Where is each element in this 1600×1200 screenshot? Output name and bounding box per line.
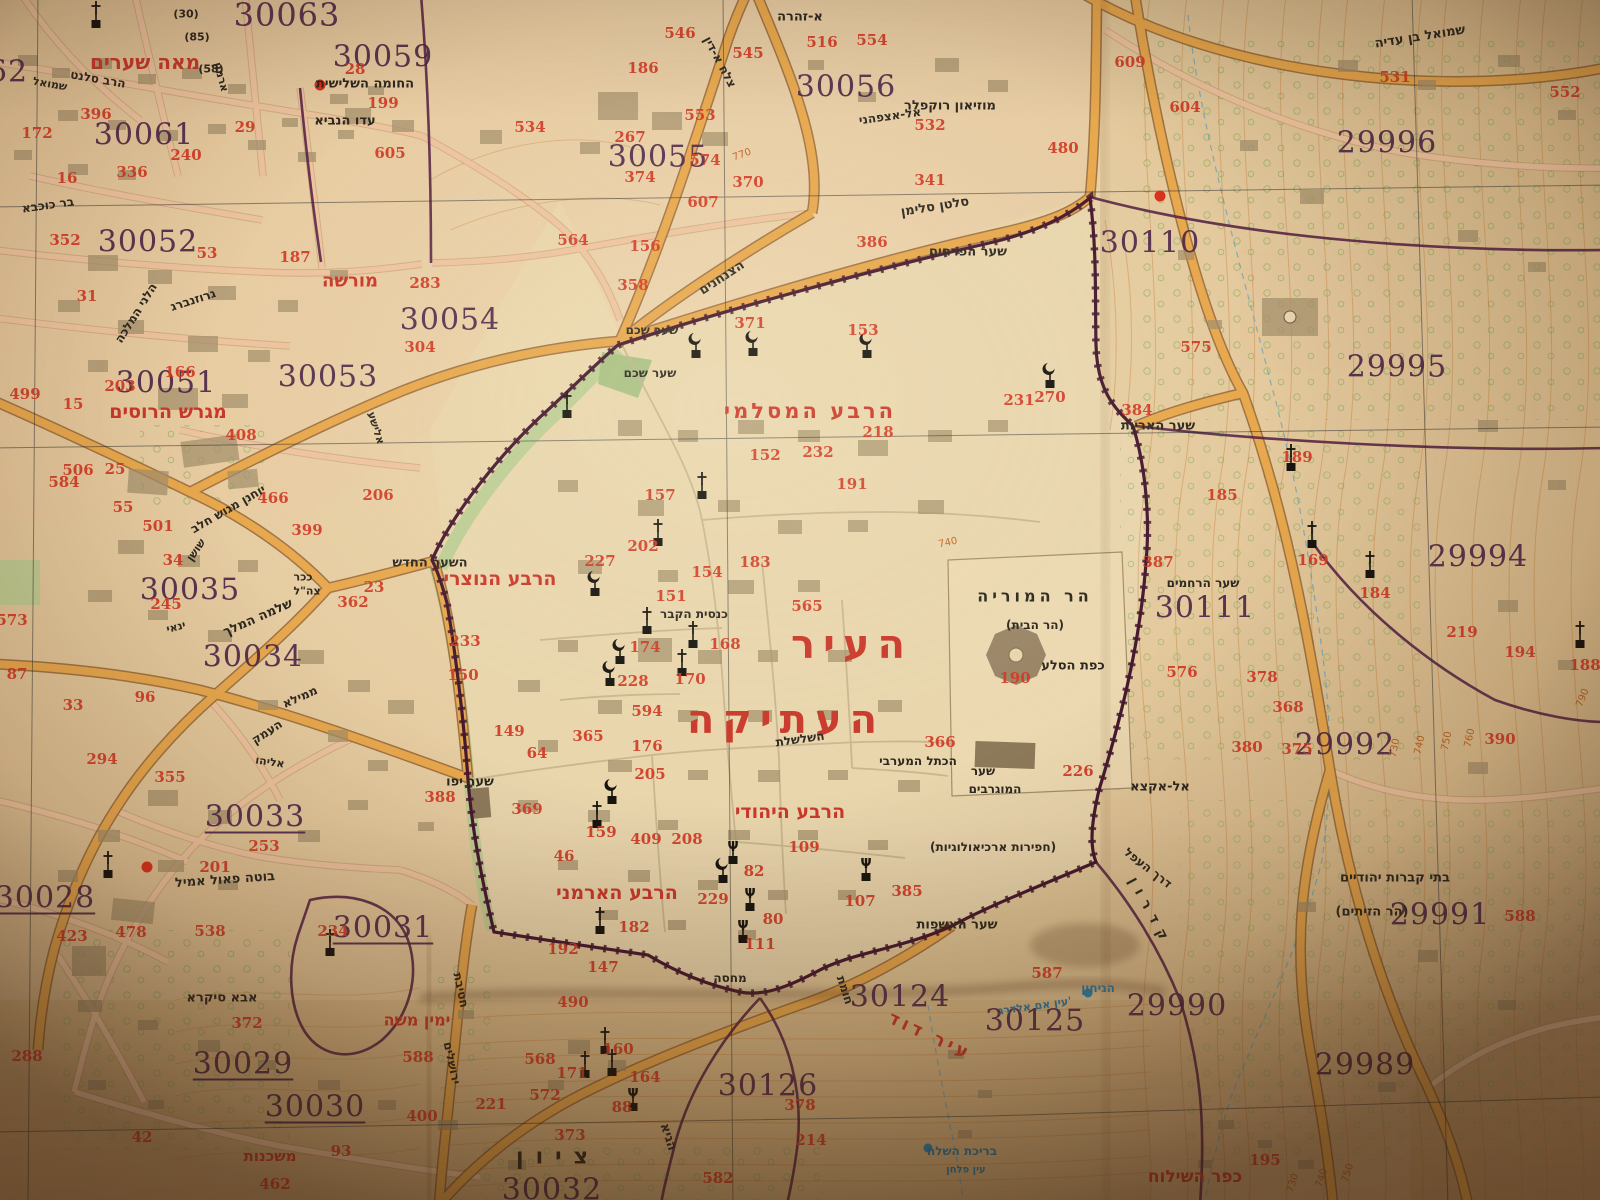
block-number-label: 30111	[1155, 591, 1255, 626]
parcel-number-label: 205	[634, 765, 665, 783]
parcel-number-label: 227	[584, 552, 615, 570]
parcel-number-label: 226	[1062, 762, 1093, 780]
place-name-red-label: הרבע המסלמי	[724, 399, 896, 423]
parcel-number-label: 480	[1047, 139, 1078, 157]
parcel-number-label: 164	[629, 1068, 660, 1086]
parcel-number-label: 499	[9, 385, 40, 403]
parcel-number-label: 283	[409, 274, 440, 292]
parcel-number-label: 229	[697, 890, 728, 908]
place-name-label: אליהו	[255, 754, 286, 771]
parcel-number-label: 16	[57, 169, 78, 187]
contour-value-label: 730	[1285, 1172, 1301, 1194]
parcel-number-label: 245	[150, 595, 181, 613]
place-name-label: שער	[971, 764, 995, 778]
parcel-number-label: 584	[48, 473, 79, 491]
place-name-label: שער האשפות	[916, 918, 997, 933]
block-number-label: 30053	[278, 360, 378, 395]
parcel-number-label: 206	[362, 486, 393, 504]
place-name-label: (85)	[184, 31, 209, 44]
contour-value-label: 740	[1413, 735, 1428, 756]
parcel-number-label: 554	[856, 31, 887, 49]
place-name-label: יוחנן מגוש חלב	[188, 482, 268, 536]
parcel-number-label: 564	[557, 231, 588, 249]
parcel-number-label: 111	[744, 935, 775, 953]
place-name-label: שער שכם	[624, 366, 677, 380]
parcel-number-label: 93	[331, 1142, 352, 1160]
parcel-number-label: 153	[847, 321, 878, 339]
parcel-number-label: 288	[11, 1047, 42, 1065]
place-name-label: סלטן סלימן	[900, 194, 970, 220]
parcel-number-label: 202	[627, 537, 658, 555]
parcel-number-label: 53	[197, 244, 218, 262]
parcel-number-label: 304	[404, 338, 435, 356]
parcel-number-label: 46	[554, 847, 575, 865]
parcel-number-label: 294	[86, 750, 117, 768]
parcel-number-label: 546	[664, 24, 695, 42]
block-number-label: 30032	[502, 1173, 602, 1200]
parcel-number-label: 55	[113, 498, 134, 516]
parcel-number-label: 378	[1246, 668, 1277, 686]
parcel-number-label: 372	[231, 1014, 262, 1032]
place-name-label: אבא סיקרא	[187, 991, 258, 1006]
parcel-number-label: 234	[317, 922, 348, 940]
parcel-number-label: 185	[1206, 486, 1237, 504]
block-number-label: 30030	[265, 1090, 365, 1125]
place-name-label: עדו הנביא	[314, 114, 375, 129]
place-name-label: שושן	[184, 536, 209, 563]
block-number-label: 29995	[1347, 350, 1447, 385]
parcel-number-label: 192	[547, 940, 578, 958]
block-number-label: 30056	[796, 70, 896, 105]
parcel-number-label: 399	[291, 521, 322, 539]
parcel-number-label: 166	[164, 363, 195, 381]
parcel-number-label: 157	[644, 486, 675, 504]
place-name-label: א-זהרה	[777, 10, 823, 25]
parcel-number-label: 218	[862, 423, 893, 441]
place-name-label: אל-אצפהני	[858, 105, 922, 128]
place-name-red-label: ימין משה	[384, 1011, 451, 1030]
parcel-number-label: 594	[631, 702, 662, 720]
place-name-label: בוטה פאול אמיל	[175, 869, 276, 891]
contour-value-label: 730	[1388, 738, 1403, 759]
parcel-number-label: 42	[132, 1128, 153, 1146]
parcel-number-label: 531	[1379, 68, 1410, 86]
place-name-label: שער האריות	[1121, 419, 1195, 434]
parcel-number-label: 588	[1504, 907, 1535, 925]
contour-value-label: 760	[1463, 728, 1478, 749]
place-name-label: החומה השלישית	[316, 77, 414, 92]
parcel-number-label: 231	[1003, 391, 1034, 409]
place-name-label: הר המוריה	[977, 587, 1093, 606]
place-name-red-label: כפר השילוח	[1148, 1167, 1242, 1187]
block-number-label: 30110	[1100, 226, 1200, 261]
block-number-label: 30054	[400, 303, 500, 338]
place-name-label: ממילא	[280, 683, 319, 711]
parcel-number-label: 152	[749, 446, 780, 464]
place-name-label: שער הרחמים	[1167, 576, 1240, 590]
place-name-red-label: העיר	[791, 622, 913, 668]
parcel-number-label: 28	[345, 60, 366, 78]
place-name-red-label: עיר דוד	[885, 1008, 975, 1065]
parcel-number-label: 82	[744, 862, 765, 880]
place-name-label: אלישע	[365, 410, 388, 446]
parcel-number-label: 605	[374, 144, 405, 162]
place-name-label: אל-אקצא	[1130, 780, 1190, 795]
parcel-number-label: 378	[784, 1096, 815, 1114]
place-name-label: העמק	[249, 717, 285, 747]
parcel-number-label: 336	[116, 163, 147, 181]
water-name-label: עין פלחן	[946, 1165, 985, 1176]
place-name-label: בר כוכבא	[21, 194, 75, 215]
parcel-number-label: 552	[1549, 83, 1580, 101]
parcel-number-label: 384	[1121, 401, 1152, 419]
place-name-label: שער יפו	[446, 775, 494, 790]
parcel-number-label: 396	[80, 105, 111, 123]
parcel-number-label: 609	[1114, 53, 1145, 71]
parcel-number-label: 199	[367, 94, 398, 112]
place-name-label: השער החדש	[392, 556, 467, 571]
place-name-red-label: הרבע הארמני	[556, 882, 678, 904]
parcel-number-label: 151	[655, 587, 686, 605]
parcel-number-label: 408	[225, 426, 256, 444]
contour-value-label: 740	[1314, 1167, 1330, 1189]
parcel-number-label: 171	[556, 1064, 587, 1082]
place-name-label: שמואל	[32, 75, 68, 94]
parcel-number-label: 267	[614, 128, 645, 146]
parcel-number-label: 88	[612, 1098, 633, 1116]
block-number-label: 30052	[98, 225, 198, 260]
parcel-number-label: 29	[235, 118, 256, 136]
parcel-number-label: 64	[527, 744, 548, 762]
parcel-number-label: 409	[630, 830, 661, 848]
place-name-label: מחסה	[713, 971, 746, 985]
parcel-number-label: 160	[602, 1040, 633, 1058]
contour-value-label: 750	[1340, 1162, 1356, 1184]
parcel-number-label: 390	[1484, 730, 1515, 748]
parcel-number-label: 168	[709, 635, 740, 653]
parcel-number-label: 203	[104, 377, 135, 395]
parcel-number-label: 374	[624, 168, 655, 186]
parcel-number-label: 176	[631, 737, 662, 755]
parcel-number-label: 370	[732, 173, 763, 191]
parcel-number-label: 355	[154, 768, 185, 786]
place-name-label: בתי קברות יהודיים	[1340, 871, 1450, 886]
parcel-number-label: 565	[791, 597, 822, 615]
parcel-number-label: 538	[194, 922, 225, 940]
place-name-label: צלח א-דין	[701, 34, 740, 90]
parcel-number-label: 233	[449, 632, 480, 650]
parcel-number-label: 574	[689, 151, 720, 169]
place-name-label: (הר הבית)	[1006, 618, 1064, 632]
place-name-label: ירושלים	[441, 1040, 464, 1085]
parcel-number-label: 208	[671, 830, 702, 848]
block-number-label: 29994	[1428, 540, 1528, 575]
parcel-number-label: 462	[259, 1175, 290, 1193]
place-name-label: כפת הסלע	[1041, 659, 1105, 674]
contour-value-label: 740	[938, 536, 959, 551]
parcel-number-label: 31	[77, 287, 98, 305]
parcel-number-label: 186	[627, 59, 658, 77]
parcel-number-label: 87	[7, 665, 28, 683]
parcel-number-label: 400	[406, 1107, 437, 1125]
parcel-number-label: 387	[1142, 553, 1173, 571]
parcel-number-label: 34	[163, 551, 184, 569]
parcel-number-label: 501	[142, 517, 173, 535]
place-name-label: המוגרבים	[969, 782, 1022, 796]
parcel-number-label: 172	[21, 124, 52, 142]
parcel-number-label: 534	[514, 118, 545, 136]
parcel-number-label: 240	[170, 146, 201, 164]
place-name-label: ינאי	[165, 618, 187, 636]
parcel-number-label: 147	[587, 958, 618, 976]
block-number-label: 30034	[203, 640, 303, 675]
parcel-number-label: 575	[1180, 338, 1211, 356]
parcel-number-label: 15	[63, 395, 84, 413]
parcel-number-label: 573	[0, 611, 28, 629]
parcel-number-label: 385	[891, 882, 922, 900]
parcel-number-label: 80	[763, 910, 784, 928]
parcel-number-label: 568	[524, 1050, 555, 1068]
parcel-number-label: 195	[1249, 1151, 1280, 1169]
parcel-number-label: 221	[475, 1095, 506, 1113]
contour-value-label: 790	[1574, 687, 1591, 709]
parcel-number-label: 572	[529, 1086, 560, 1104]
parcel-number-label: 154	[691, 563, 722, 581]
place-name-label: ככר	[293, 571, 312, 584]
place-name-label: חטיבת	[450, 971, 471, 1009]
place-name-label: כנסית הקבר	[660, 607, 728, 621]
parcel-number-label: 190	[999, 669, 1030, 687]
parcel-number-label: 159	[585, 823, 616, 841]
place-name-label: (58)	[198, 63, 223, 76]
place-name-label: צה"ל	[293, 585, 320, 598]
parcel-number-label: 516	[806, 33, 837, 51]
contour-value-label: 770	[731, 147, 753, 164]
parcel-number-label: 194	[1504, 643, 1535, 661]
parcel-number-label: 368	[1272, 698, 1303, 716]
water-name-label: בריכת השלח	[927, 1144, 997, 1158]
parcel-number-label: 423	[56, 927, 87, 945]
parcel-number-label: 170	[674, 670, 705, 688]
parcel-number-label: 604	[1169, 98, 1200, 116]
parcel-number-label: 96	[135, 688, 156, 706]
contour-value-label: 750	[1440, 731, 1455, 752]
parcel-number-label: 232	[802, 443, 833, 461]
block-number-label: 29989	[1315, 1048, 1415, 1083]
place-name-red-label: מאה שערים	[90, 50, 200, 74]
water-name-label: הגיחון	[1081, 981, 1115, 995]
block-number-label: 30033	[205, 800, 305, 835]
place-name-label: שמואל בן עדיה	[1374, 22, 1467, 51]
parcel-number-label: 184	[1359, 584, 1390, 602]
place-name-red-label: הרבע הנוצרי	[444, 568, 557, 590]
parcel-number-label: 156	[629, 237, 660, 255]
parcel-number-label: 358	[617, 276, 648, 294]
parcel-number-label: 214	[795, 1131, 826, 1149]
block-number-label: 30028	[0, 881, 95, 916]
parcel-number-label: 553	[684, 106, 715, 124]
parcel-number-label: 341	[914, 171, 945, 189]
block-number-label: 62	[0, 55, 28, 90]
place-name-red-label: מורשה	[322, 271, 378, 292]
parcel-number-label: 375	[1281, 740, 1312, 758]
parcel-number-label: 380	[1231, 738, 1262, 756]
parcel-number-label: 191	[836, 475, 867, 493]
place-name-label: הכתל המערבי	[879, 754, 957, 768]
parcel-number-label: 182	[618, 918, 649, 936]
parcel-number-label: 576	[1166, 663, 1197, 681]
parcel-number-label: 587	[1031, 964, 1062, 982]
parcel-number-label: 189	[1281, 448, 1312, 466]
parcel-number-label: 150	[447, 666, 478, 684]
map-labels-layer: 3006330059300613005630055300523005430053…	[0, 0, 1600, 1200]
parcel-number-label: 478	[115, 923, 146, 941]
parcel-number-label: 33	[63, 696, 84, 714]
parcel-number-label: 188	[1569, 656, 1600, 674]
place-name-label: שער שכם	[626, 323, 679, 337]
parcel-number-label: 545	[732, 44, 763, 62]
parcel-number-label: 253	[248, 837, 279, 855]
parcel-number-label: 607	[687, 193, 718, 211]
place-name-red-label: משכנות	[244, 1147, 297, 1165]
place-name-label: ציון	[516, 1145, 600, 1170]
block-number-label: 29996	[1337, 126, 1437, 161]
parcel-number-label: 388	[424, 788, 455, 806]
block-number-label: 30029	[193, 1047, 293, 1082]
place-name-label: שער הפרחים	[929, 245, 1007, 260]
parcel-number-label: 107	[844, 892, 875, 910]
place-name-label: (30)	[173, 8, 198, 21]
place-name-label: הגיא	[657, 1121, 680, 1152]
parcel-number-label: 149	[493, 722, 524, 740]
parcel-number-label: 588	[402, 1048, 433, 1066]
parcel-number-label: 219	[1446, 623, 1477, 641]
parcel-number-label: 109	[788, 838, 819, 856]
parcel-number-label: 582	[702, 1169, 733, 1187]
parcel-number-label: 169	[1297, 551, 1328, 569]
place-name-red-label: מגרש הרוסים	[109, 401, 226, 423]
block-number-label: 30063	[234, 0, 341, 34]
parcel-number-label: 373	[554, 1126, 585, 1144]
parcel-number-label: 371	[734, 314, 765, 332]
parcel-number-label: 187	[279, 248, 310, 266]
jerusalem-old-city-survey-map: ΨΨΨΨΨ 3006330059300613005630055300523005…	[0, 0, 1600, 1200]
place-name-red-label: הרבע היהודי	[735, 801, 845, 823]
place-name-label: הלני המלכה	[112, 281, 160, 346]
place-name-label: הצנחנים	[697, 258, 748, 298]
parcel-number-label: 183	[739, 553, 770, 571]
block-number-label: 29990	[1127, 989, 1227, 1024]
place-name-label: (חפירות ארכיאולוגיות)	[930, 840, 1056, 854]
parcel-number-label: 270	[1034, 388, 1065, 406]
parcel-number-label: 25	[105, 460, 126, 478]
place-name-label: גרוזנברג	[169, 286, 218, 314]
parcel-number-label: 369	[511, 800, 542, 818]
parcel-number-label: 366	[924, 733, 955, 751]
block-number-label: 30124	[850, 980, 950, 1015]
parcel-number-label: 174	[629, 638, 660, 656]
parcel-number-label: 365	[572, 727, 603, 745]
parcel-number-label: 362	[337, 593, 368, 611]
parcel-number-label: 352	[49, 231, 80, 249]
parcel-number-label: 228	[617, 672, 648, 690]
parcel-number-label: 386	[856, 233, 887, 251]
place-name-label: (הר הזיתים)	[1336, 905, 1409, 920]
parcel-number-label: 490	[557, 993, 588, 1011]
